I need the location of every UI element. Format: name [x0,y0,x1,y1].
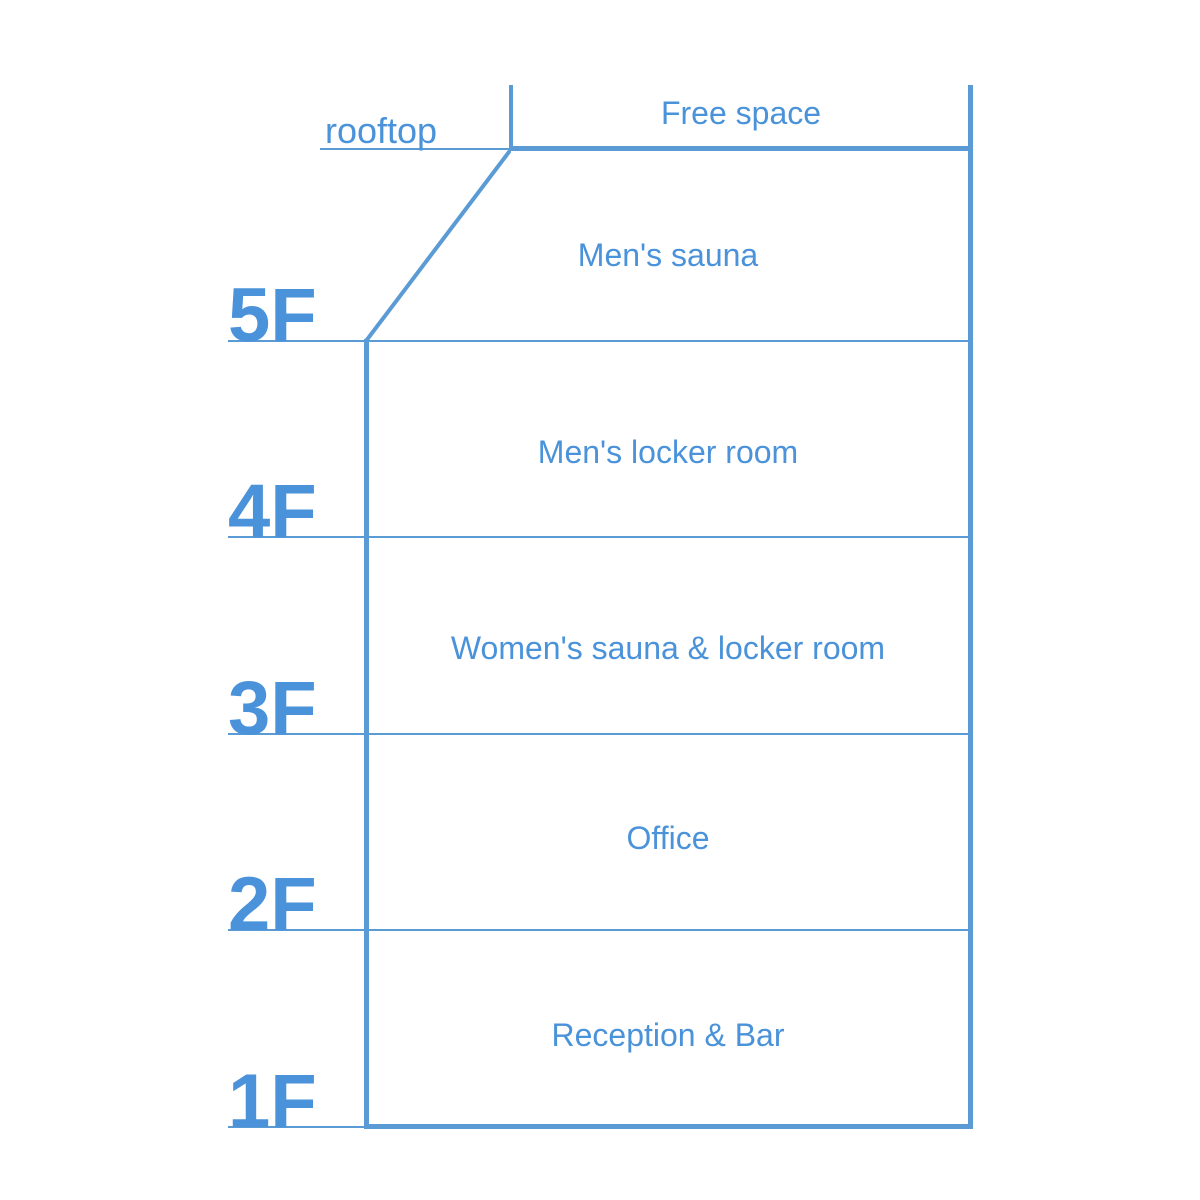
level-label-4f: 4F [228,474,317,550]
room-label-womens-sauna-locker-room: Women's sauna & locker room [366,632,970,664]
roof-edge [509,146,973,151]
level-label-3f: 3F [228,671,317,747]
floor-line-4f [228,536,970,538]
room-label-reception-bar: Reception & Bar [366,1019,970,1051]
bottom-edge [364,1124,973,1129]
floor-line-3f [228,733,970,735]
floor-line-5f [228,340,970,342]
level-label-5f: 5F [228,278,317,354]
floor-guide-diagram: rooftop 5F 4F 3F 2F 1F Free space Men's … [0,0,1200,1200]
floor-line-2f [228,929,970,931]
level-label-2f: 2F [228,867,317,943]
level-label-1f: 1F [228,1064,317,1140]
level-label-rooftop: rooftop [325,113,437,149]
room-label-office: Office [366,822,970,854]
room-label-free-space: Free space [509,97,973,129]
room-label-mens-locker-room: Men's locker room [366,436,970,468]
room-label-mens-sauna: Men's sauna [366,239,970,271]
